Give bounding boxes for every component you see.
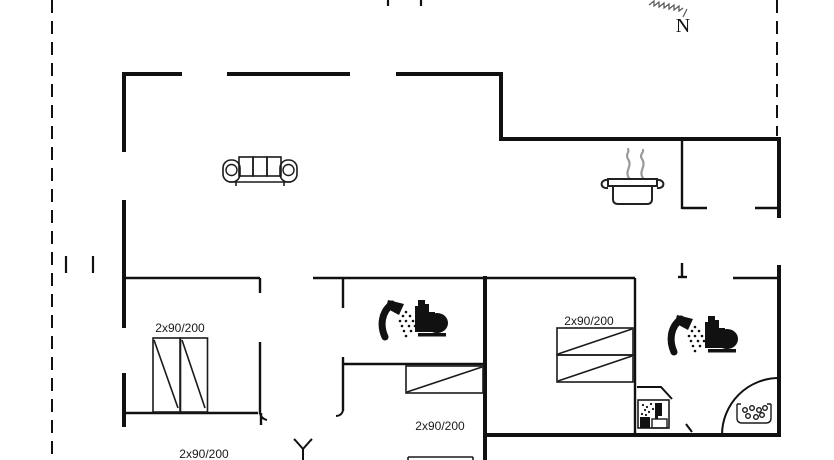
- bed-size-label: 2x90/200: [179, 447, 229, 460]
- right-bedroom-beds: [557, 328, 633, 382]
- bed-size-label: 2x90/200: [155, 321, 205, 335]
- left-bedroom-beds: [153, 338, 208, 412]
- hook-symbol: [294, 439, 312, 460]
- sofa-icon: [223, 157, 297, 186]
- toilet-icon: [705, 316, 738, 353]
- steam-lines: [627, 149, 644, 178]
- bed-size-label: 2x90/200: [415, 419, 465, 433]
- shower-icon: [382, 300, 416, 337]
- bed-size-label: 2x90/200: [564, 314, 614, 328]
- compass-north-label: N: [676, 15, 690, 37]
- toilet-icon: [415, 300, 448, 337]
- interior-walls: [124, 141, 779, 435]
- washing-machine-icon: [638, 400, 669, 428]
- middle-bedroom-bed: [406, 366, 483, 393]
- shower-icon: [671, 315, 705, 352]
- shower-tray-icon: [737, 404, 771, 423]
- floor-plan: N: [0, 0, 834, 460]
- cooking-pot-icon: [602, 179, 664, 204]
- boundary-tick-marks: [66, 0, 421, 273]
